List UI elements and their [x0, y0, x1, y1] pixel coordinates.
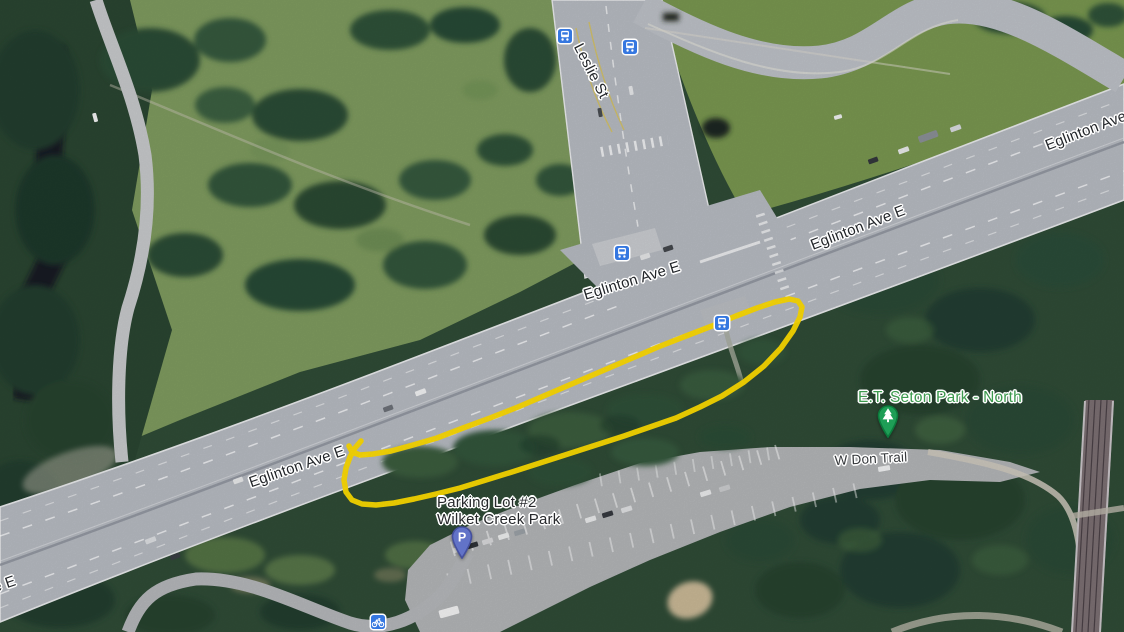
eglinton-ave-e-mid-label: Eglinton Ave E	[808, 202, 908, 254]
park-pin-icon[interactable]	[876, 404, 900, 438]
bus-stop-icon[interactable]	[714, 315, 731, 332]
eglinton-ave-e-southwest-label: Eglinton Ave E	[247, 443, 347, 492]
bus-stop-icon[interactable]	[557, 28, 574, 45]
bus-stop-icon[interactable]	[622, 39, 639, 56]
svg-text:P: P	[458, 530, 466, 544]
eglinton-ave-e-corner-label: Eglinton Ave E	[0, 573, 18, 622]
bike-parking-icon[interactable]	[370, 614, 387, 631]
satellite-map[interactable]: Leslie StEglinton AveEglinton Ave EEglin…	[0, 0, 1124, 632]
bus-stop-icon[interactable]	[614, 245, 631, 262]
parking-lot-2-label[interactable]: Parking Lot #2Wilket Creek Park	[437, 494, 560, 529]
label-layer: Leslie StEglinton AveEglinton Ave EEglin…	[0, 0, 1124, 632]
leslie-st-label: Leslie St	[570, 41, 612, 102]
eglinton-ave-e-center-label: Eglinton Ave E	[582, 258, 683, 304]
parking-pin-icon[interactable]: P	[450, 525, 474, 559]
w-don-trail-label: W Don Trail	[834, 449, 907, 468]
eglinton-ave-northeast-label: Eglinton Ave	[1043, 108, 1124, 155]
